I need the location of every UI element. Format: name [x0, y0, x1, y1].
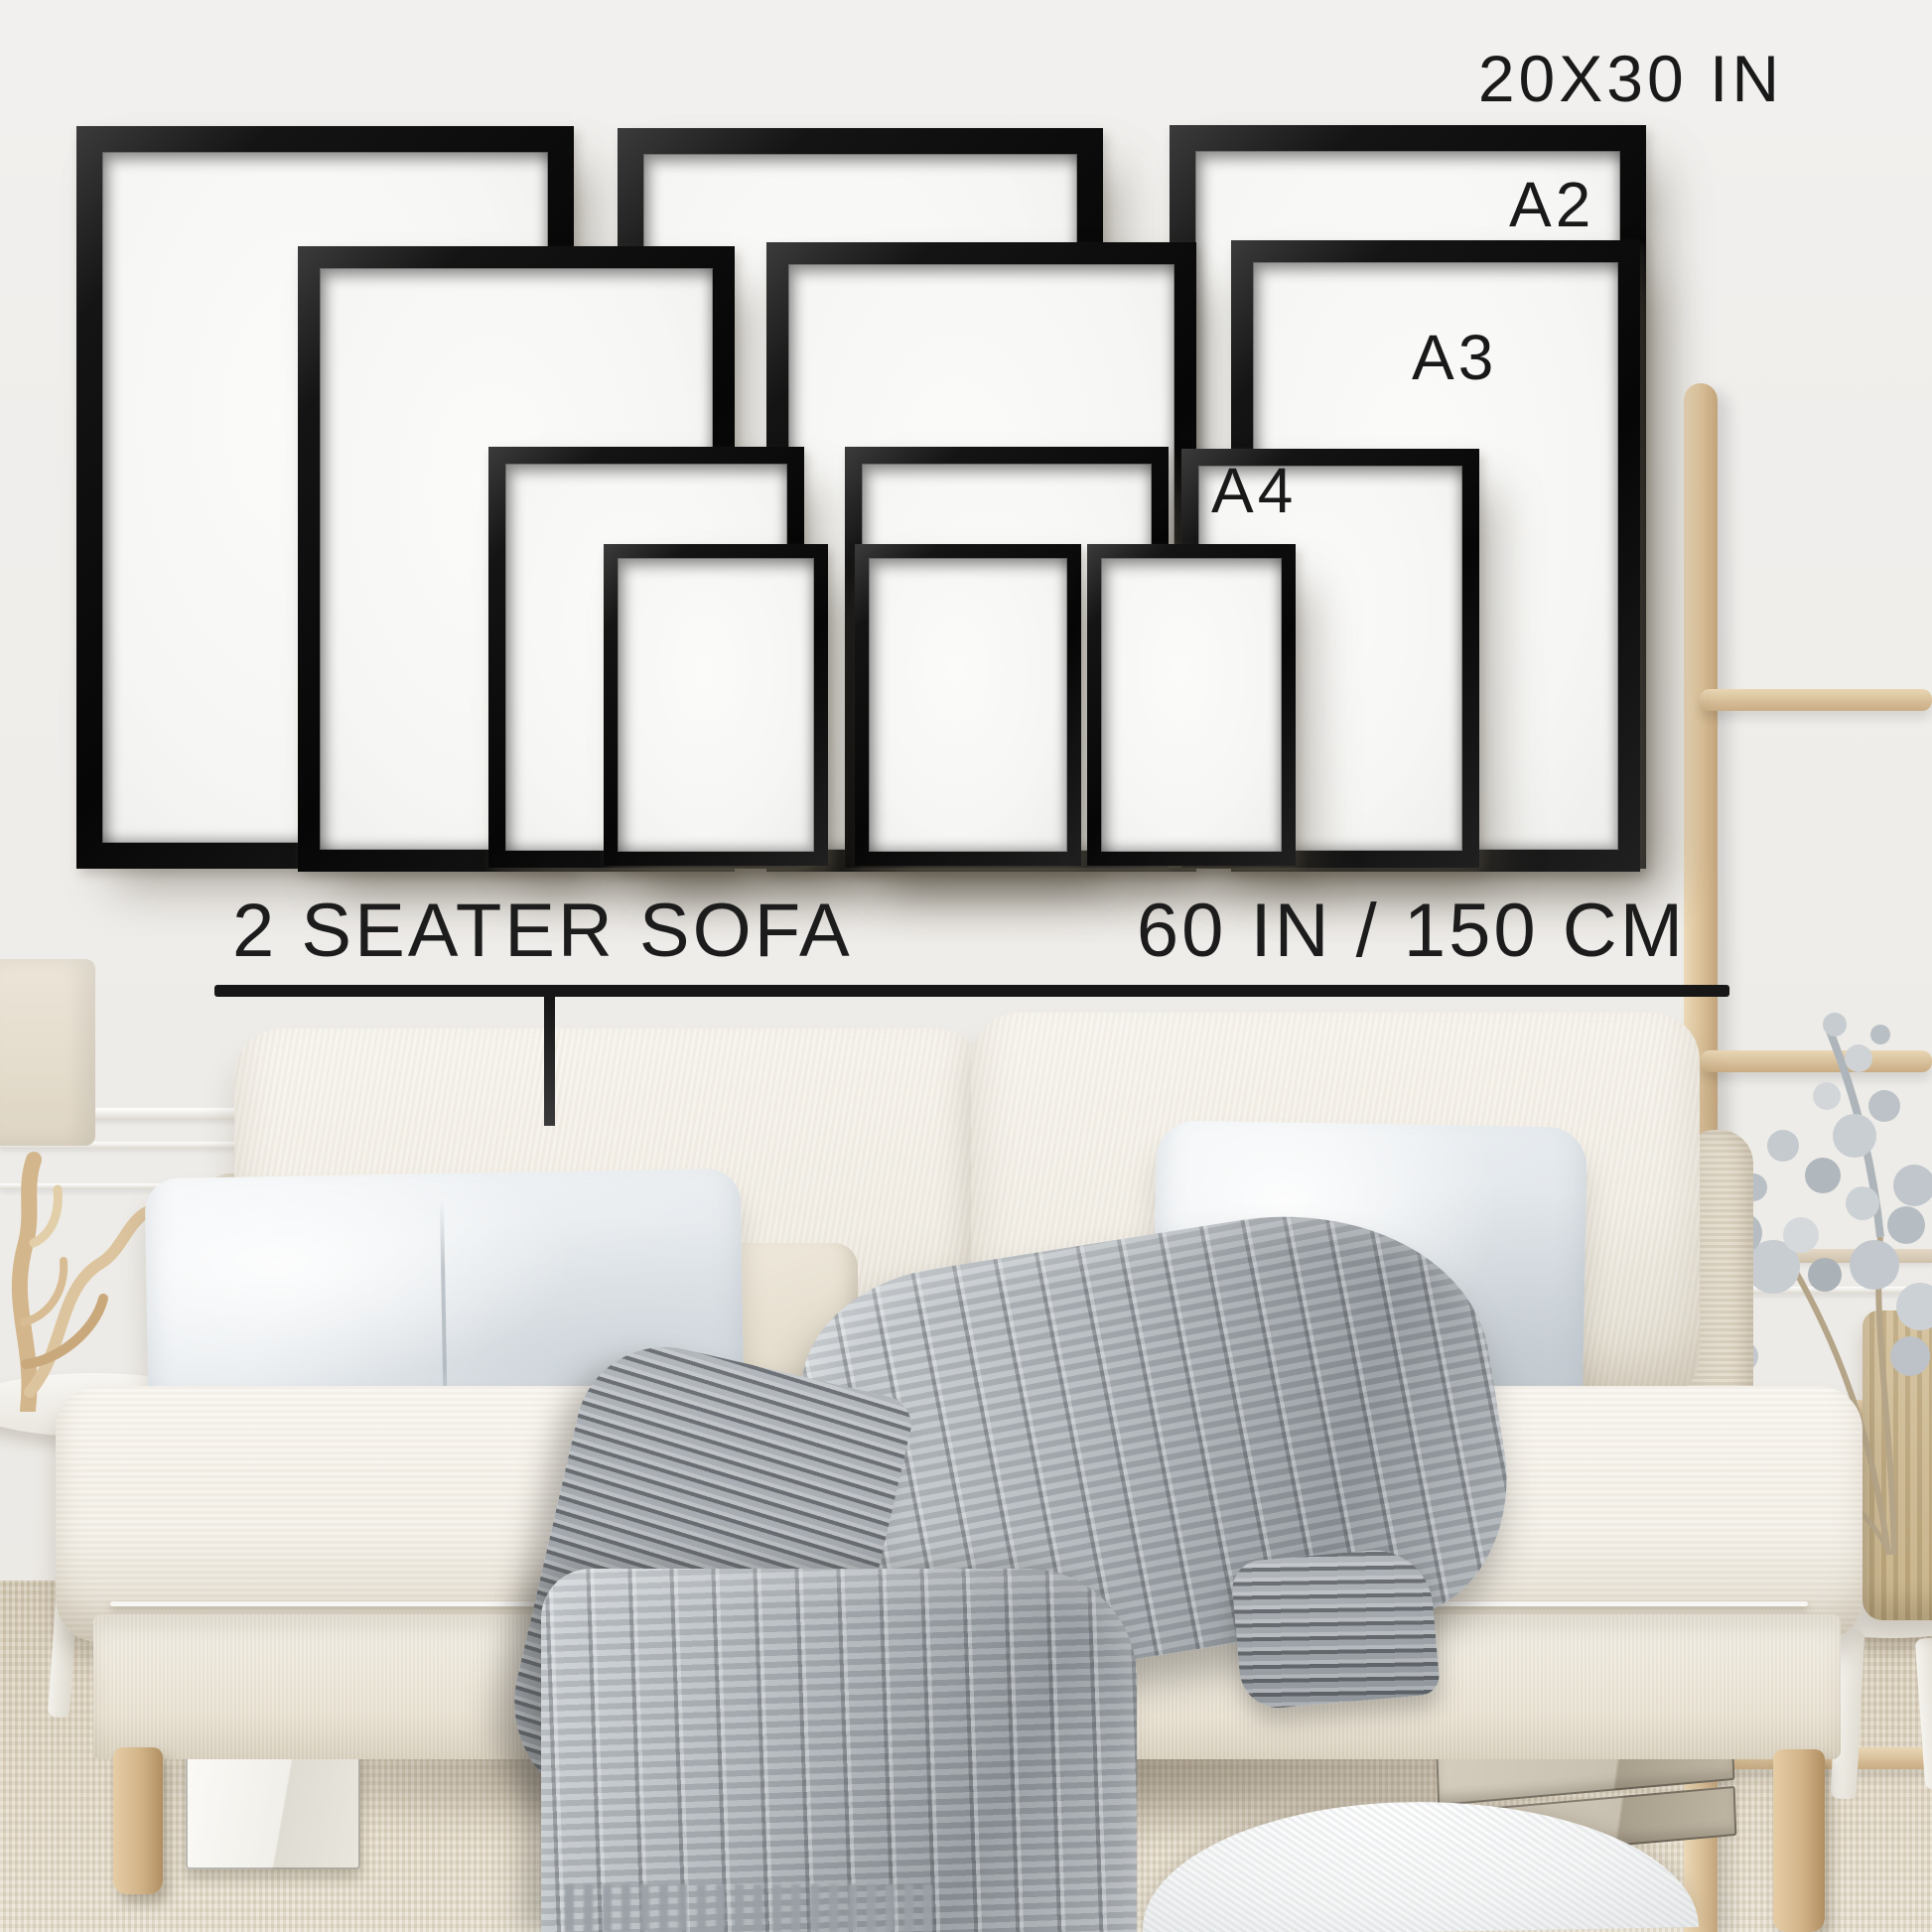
size-label-a3: A3: [1412, 326, 1497, 389]
sofa-width-measurement: 60 IN / 150 CM: [1137, 894, 1686, 969]
frame-a4-right: [1087, 544, 1296, 866]
frame-mat: [1101, 558, 1282, 852]
frame-a4-left: [604, 544, 828, 866]
sofa-width-label: 2 SEATER SOFA: [232, 894, 853, 969]
knit-blanket-ribbed-fold: [1230, 1546, 1441, 1712]
knit-blanket-floor-drape: [541, 1569, 1137, 1932]
frame-a4-middle: [855, 544, 1081, 866]
frame-mat: [869, 558, 1067, 852]
ladder-rung: [1700, 689, 1932, 711]
sofa-leg-left: [113, 1747, 163, 1894]
size-label-20x30in: 20X30 IN: [1478, 46, 1783, 111]
size-label-a4: A4: [1211, 459, 1297, 522]
frame-size-guide-mockup: 20X30 IN A2 A3 A4 2 SEATER SOFA 60 IN / …: [0, 0, 1932, 1932]
size-label-a2: A2: [1509, 173, 1594, 236]
sofa-width-line-tick: [544, 995, 555, 1126]
sofa-width-line: [214, 985, 1729, 997]
frame-mat: [618, 558, 814, 852]
sofa-leg-right: [1773, 1749, 1825, 1932]
storage-box-white: [186, 1742, 360, 1869]
